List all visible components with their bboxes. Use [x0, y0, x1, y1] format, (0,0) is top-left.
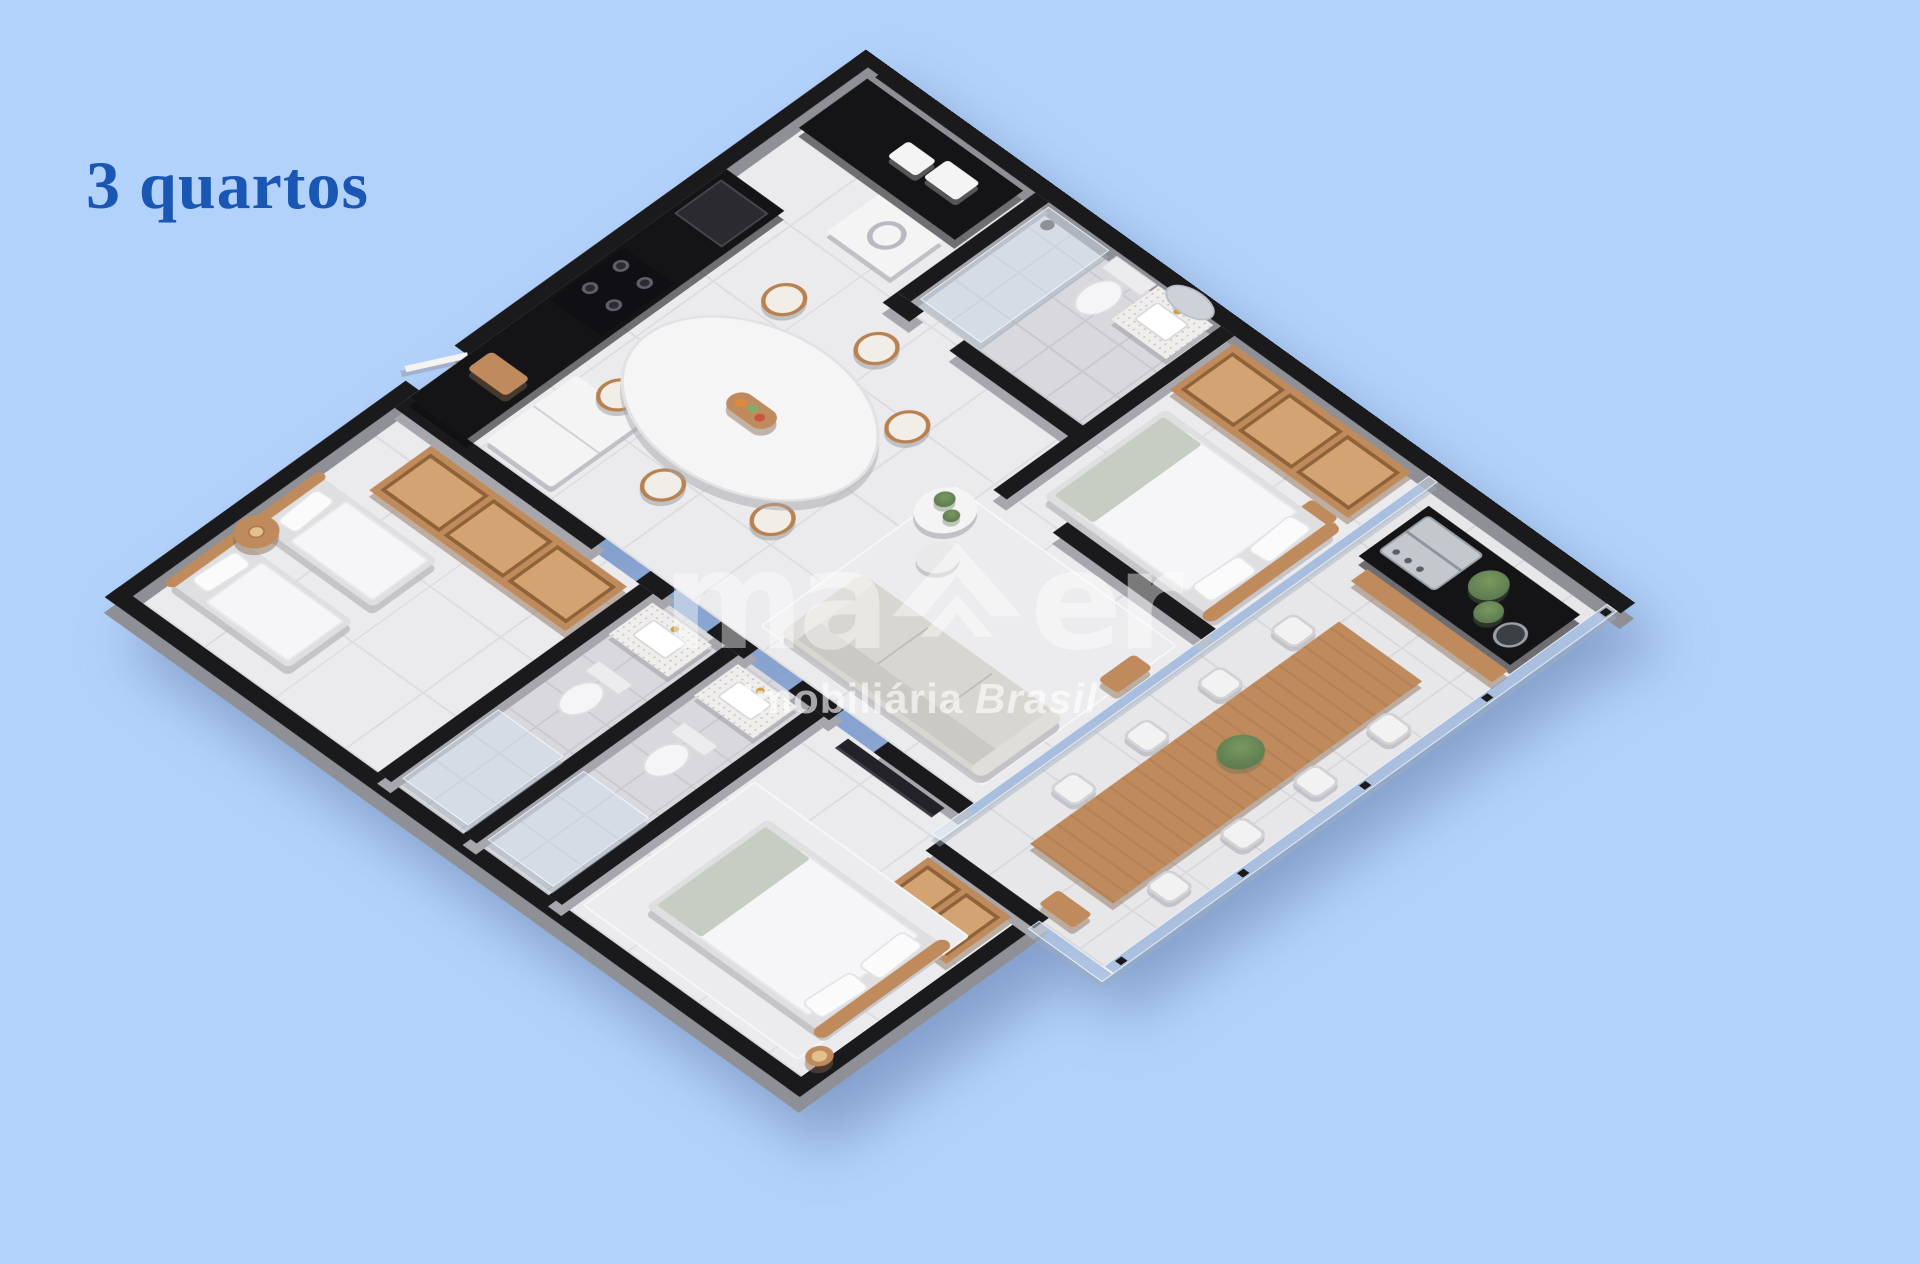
- watermark: ma er ImobiliáriaBrasil: [640, 540, 1200, 723]
- watermark-logo-left: ma: [663, 540, 884, 665]
- watermark-tagline-italic: Brasil: [975, 675, 1098, 722]
- watermark-logo: ma er: [640, 540, 1200, 665]
- chevron-house-icon: [892, 543, 1022, 665]
- watermark-tagline-regular: Imobiliária: [742, 675, 963, 722]
- page-title: 3 quartos: [86, 146, 369, 225]
- tv-panel: [835, 739, 945, 818]
- watermark-tagline: ImobiliáriaBrasil: [640, 675, 1200, 723]
- watermark-logo-right: er: [1030, 540, 1177, 665]
- poster-canvas: 3 quartos: [0, 0, 1920, 1264]
- lamp-shade-icon: [809, 1048, 831, 1064]
